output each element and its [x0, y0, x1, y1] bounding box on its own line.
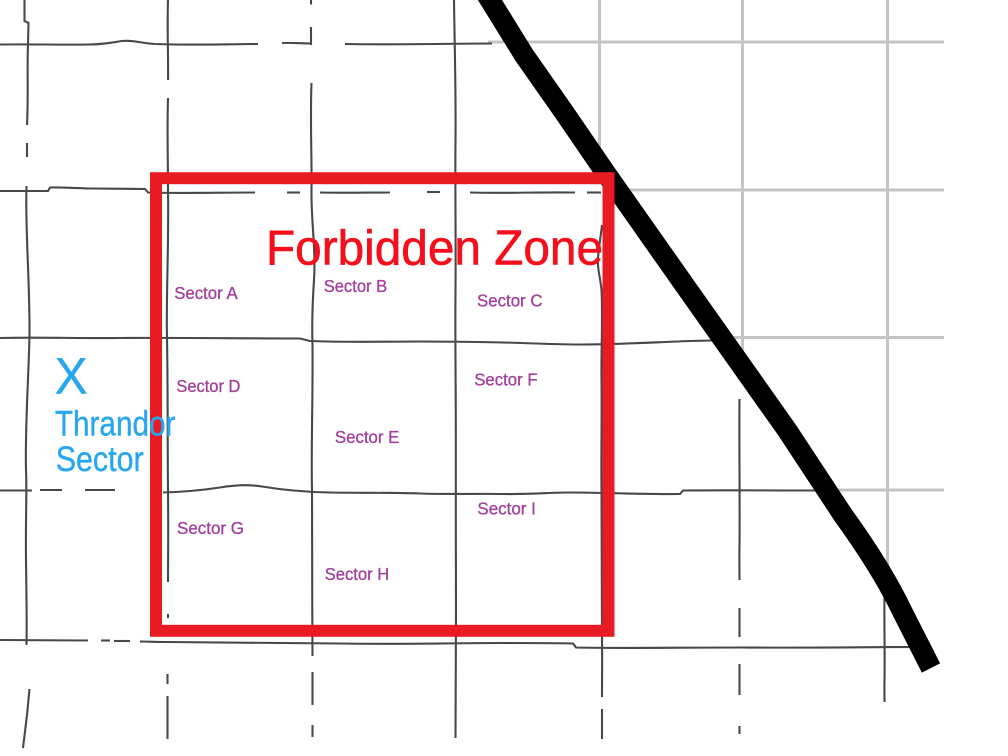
svg-text:Thrandor: Thrandor	[55, 405, 176, 444]
svg-text:Sector F: Sector F	[474, 369, 538, 389]
svg-text:Sector D: Sector D	[176, 376, 240, 396]
svg-text:Sector C: Sector C	[477, 291, 543, 311]
svg-text:Forbidden Zone: Forbidden Zone	[266, 222, 603, 276]
svg-text:Sector A: Sector A	[174, 283, 238, 303]
svg-text:Sector B: Sector B	[324, 276, 388, 296]
svg-text:X: X	[55, 347, 88, 404]
svg-text:Sector I: Sector I	[477, 499, 536, 519]
svg-text:Sector H: Sector H	[325, 564, 390, 584]
svg-text:Sector E: Sector E	[335, 427, 400, 447]
svg-text:Sector: Sector	[56, 440, 144, 479]
svg-text:Sector G: Sector G	[177, 518, 244, 538]
